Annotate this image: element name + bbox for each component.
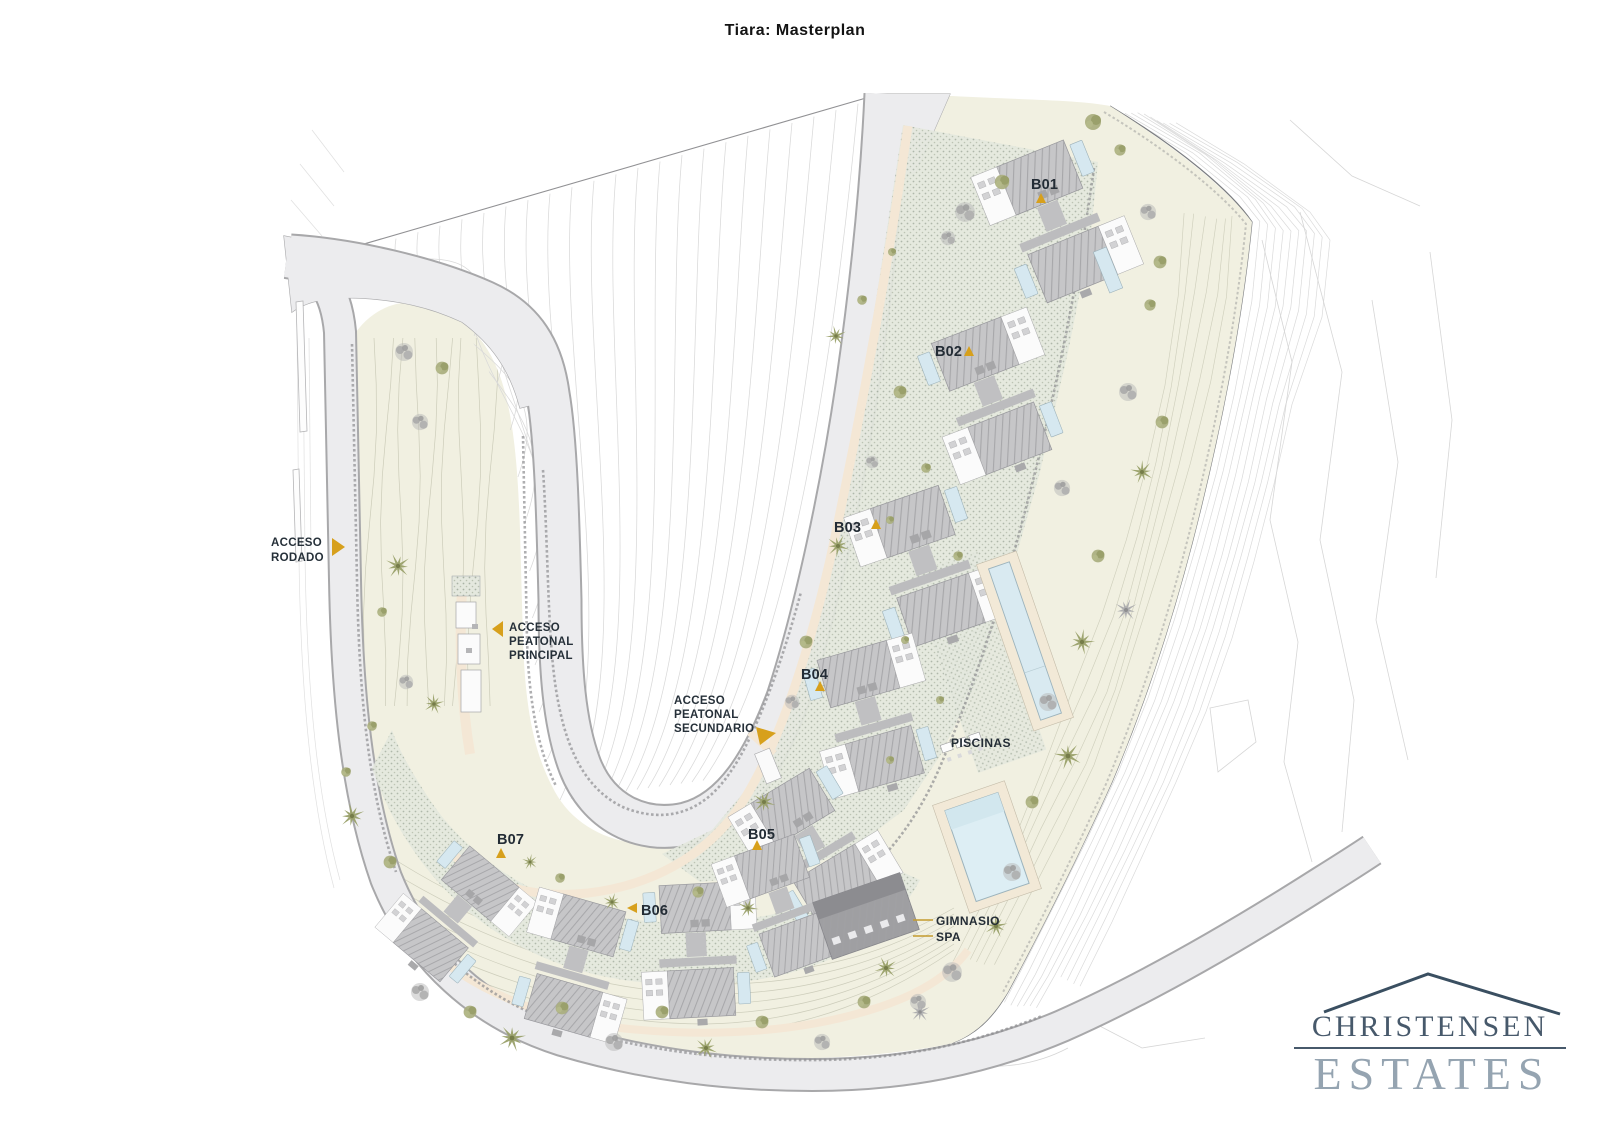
label-b02: B02 [935, 344, 962, 360]
label-acceso-secundario-3: SECUNDARIO [674, 723, 754, 735]
label-piscinas: PISCINAS [951, 736, 1011, 750]
logo-line1: CHRISTENSEN [1294, 1010, 1566, 1049]
label-spa: SPA [936, 930, 961, 944]
label-acceso-principal-2: PEATONAL [509, 636, 574, 648]
label-acceso-rodado-2: RODADO [271, 552, 324, 564]
label-b07: B07 [497, 832, 524, 848]
label-acceso-secundario-2: PEATONAL [674, 709, 739, 721]
label-acceso-principal-3: PRINCIPAL [509, 650, 573, 662]
label-b04: B04 [801, 667, 828, 683]
label-acceso-secundario-1: ACCESO [674, 695, 725, 707]
label-acceso-principal-1: ACCESO [509, 622, 560, 634]
label-b06: B06 [641, 903, 668, 919]
logo-roof-icon [1294, 968, 1566, 1016]
label-acceso-rodado-1: ACCESO [271, 537, 322, 549]
logo: CHRISTENSEN ESTATES [1294, 968, 1566, 1098]
label-b05: B05 [748, 827, 775, 843]
logo-line2: ESTATES [1294, 1050, 1566, 1098]
masterplan-page: Tiara: Masterplan [0, 0, 1600, 1131]
label-b01: B01 [1031, 177, 1058, 193]
label-gimnasio: GIMNASIO [936, 914, 1000, 928]
label-b03: B03 [834, 520, 861, 536]
site-plan: B01 B02 B03 B04 B05 B06 B07 ACCESO RODAD… [0, 0, 1600, 1131]
